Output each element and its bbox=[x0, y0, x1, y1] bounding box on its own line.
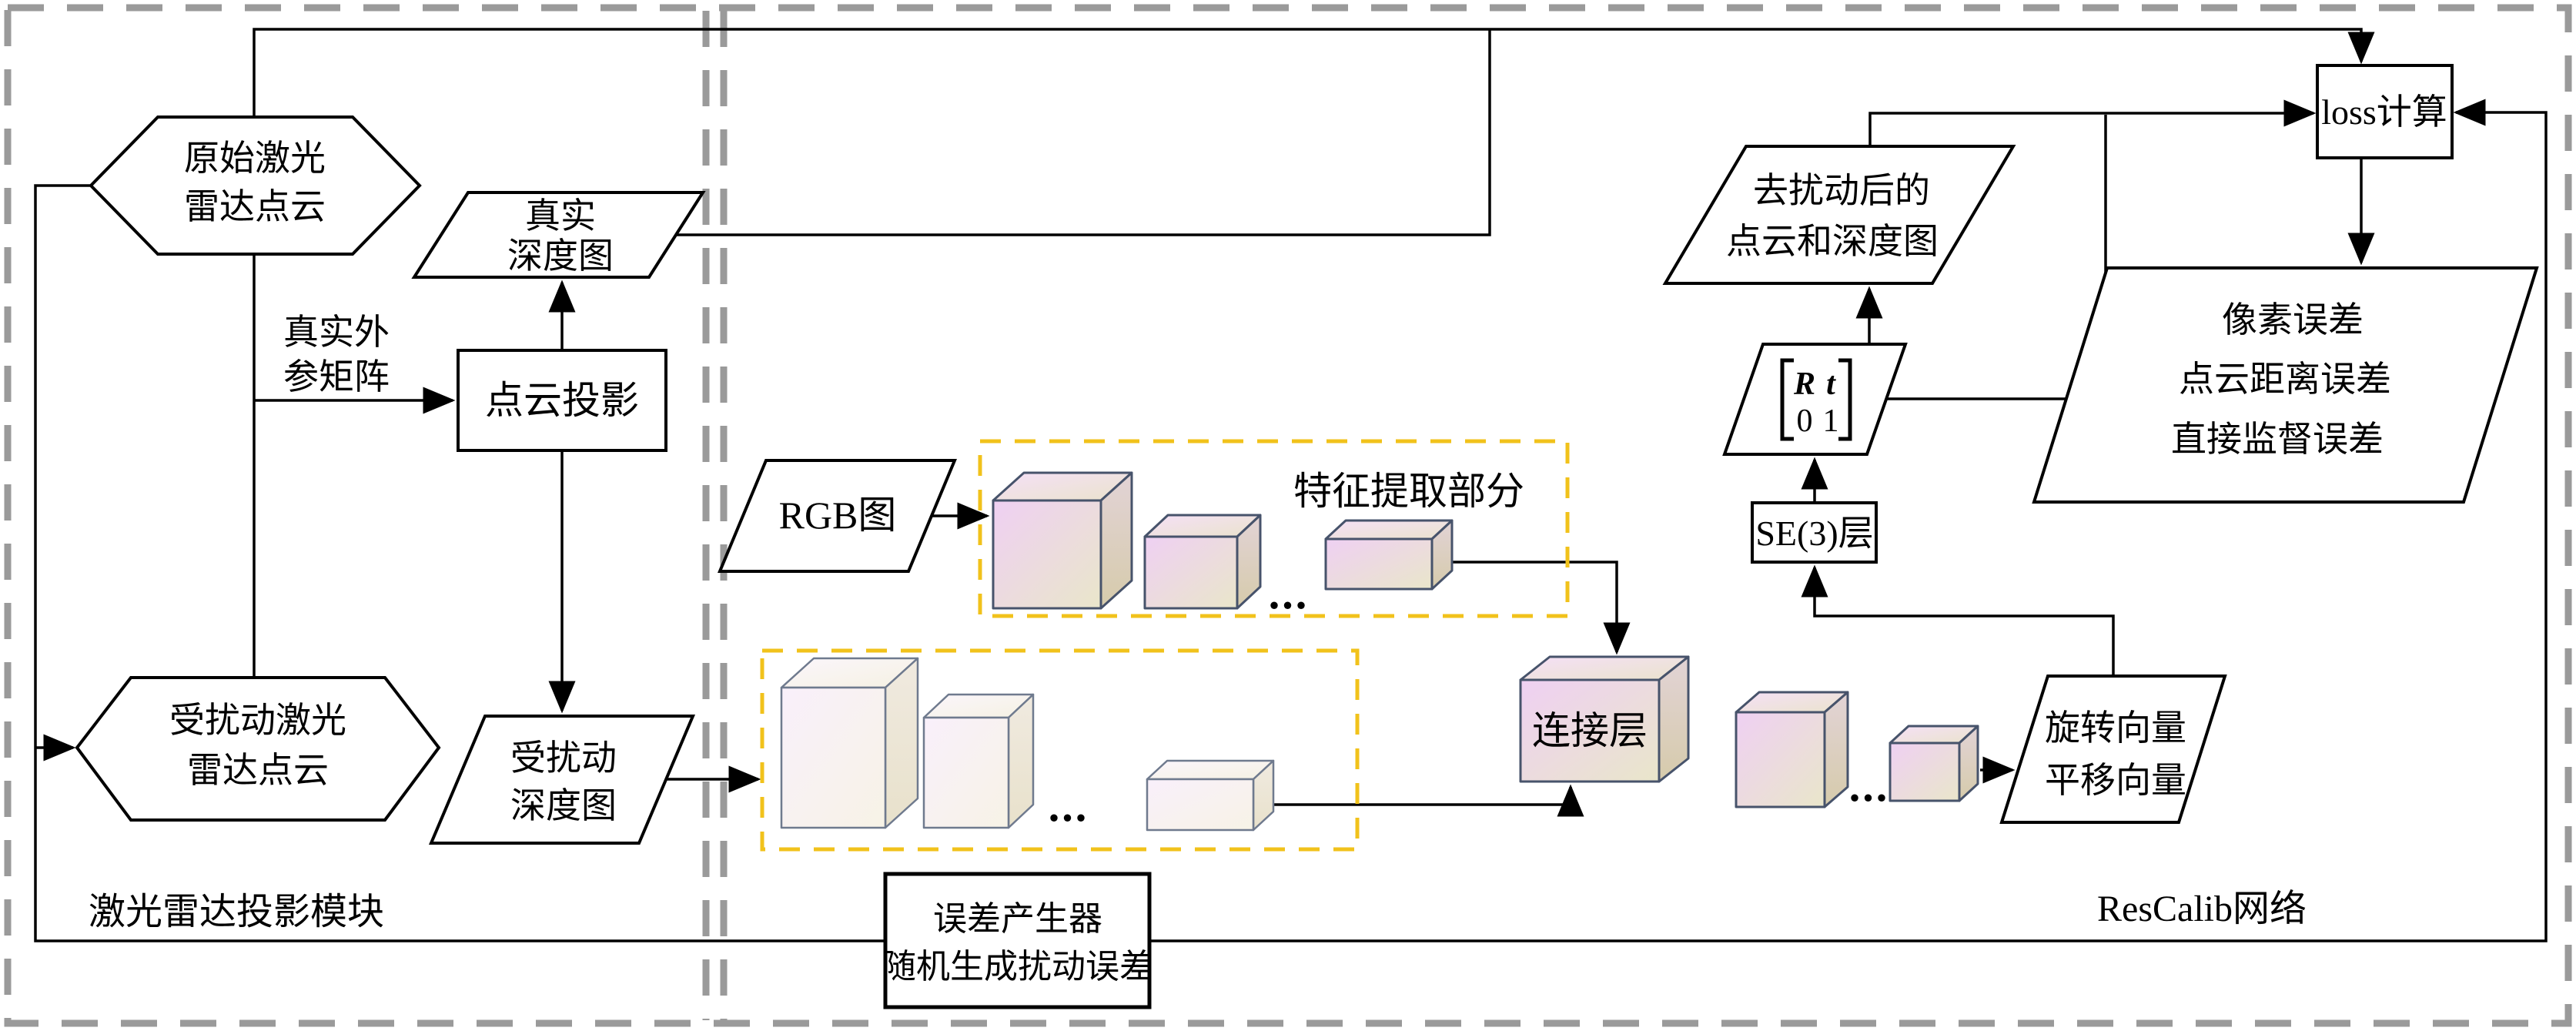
vectors-label-line1: 旋转向量 bbox=[2045, 708, 2186, 748]
matrix-t: t bbox=[1826, 367, 1836, 402]
node-perturbed-lidar-cloud bbox=[77, 678, 439, 820]
perturbed-cloud-label-line1: 受扰动激光 bbox=[169, 701, 346, 740]
depth-cube-3 bbox=[1147, 761, 1273, 830]
rescalib-network-label: ResCalib网络 bbox=[2097, 889, 2307, 929]
matrix-1: 1 bbox=[1823, 403, 1839, 439]
feature-cube-2 bbox=[1145, 515, 1260, 608]
depth-cube-1 bbox=[781, 658, 918, 828]
deperturbed-label-line2: 点云和深度图 bbox=[1726, 222, 1939, 261]
wire-deperturbed-to-loss-left bbox=[1870, 113, 2313, 146]
wire-vectors-to-se3 bbox=[1815, 567, 2113, 676]
cloud-projection-label: 点云投影 bbox=[485, 379, 639, 422]
feature-extraction-label: 特征提取部分 bbox=[1293, 470, 1524, 513]
errors-label-line2: 点云距离误差 bbox=[2179, 360, 2391, 399]
raw-cloud-label-line1: 原始激光 bbox=[184, 139, 326, 178]
se3-label: SE(3)层 bbox=[1755, 514, 1873, 553]
wire-lowerbranch-to-concat bbox=[1273, 787, 1571, 805]
true-depth-label-line1: 真实 bbox=[525, 196, 596, 236]
extrinsic-matrix-label-line1: 真实外 bbox=[283, 313, 390, 352]
diagram-canvas: 原始激光 雷达点云 真实 深度图 真实外 参矩阵 点云投影 受扰动激光 雷达点云… bbox=[0, 0, 2576, 1031]
node-deperturbed-output bbox=[1665, 146, 2013, 283]
deperturbed-label-line1: 去扰动后的 bbox=[1753, 171, 1930, 210]
concat-layer-label: 连接层 bbox=[1532, 709, 1648, 752]
node-rotation-translation-vectors bbox=[2002, 676, 2225, 822]
true-depth-label-line2: 深度图 bbox=[507, 236, 614, 276]
perturbed-depth-label-line1: 受扰动 bbox=[510, 738, 617, 778]
matrix-0: 0 bbox=[1797, 403, 1813, 439]
depth-cube-2 bbox=[924, 695, 1033, 828]
wire-truedepth-join-top bbox=[676, 29, 1490, 235]
errors-label-line3: 直接监督误差 bbox=[2171, 420, 2384, 459]
error-generator-line1: 误差产生器 bbox=[933, 900, 1102, 938]
feature-cube-3 bbox=[1326, 521, 1452, 589]
matrix-R: R bbox=[1793, 367, 1815, 402]
depth-ellipsis: ... bbox=[1049, 781, 1089, 831]
error-generator-line2: 随机生成扰动误差 bbox=[882, 948, 1153, 986]
wire-upperbranch-to-concat bbox=[1452, 562, 1617, 652]
rgb-label: RGB图 bbox=[779, 494, 897, 537]
lidar-projection-module-label: 激光雷达投影模块 bbox=[89, 892, 384, 932]
flowchart-svg: 原始激光 雷达点云 真实 深度图 真实外 参矩阵 点云投影 受扰动激光 雷达点云… bbox=[0, 0, 2576, 1031]
wire-rawcloud-to-loss-top bbox=[254, 29, 2361, 117]
perturbed-depth-label-line2: 深度图 bbox=[510, 786, 617, 825]
vectors-label-line2: 平移向量 bbox=[2045, 761, 2186, 800]
errors-label-line1: 像素误差 bbox=[2222, 300, 2364, 340]
extrinsic-matrix-label-line2: 参矩阵 bbox=[283, 357, 390, 397]
post-concat-cube-1 bbox=[1736, 692, 1848, 807]
error-generator-box bbox=[885, 874, 1149, 1007]
node-raw-lidar-cloud bbox=[91, 117, 420, 254]
perturbed-cloud-label-line2: 雷达点云 bbox=[187, 751, 329, 790]
post-concat-cube-2 bbox=[1890, 726, 1978, 801]
feature-ellipsis: ... bbox=[1269, 568, 1310, 618]
post-concat-ellipsis: ... bbox=[1849, 761, 1890, 811]
feature-cube-1 bbox=[993, 473, 1132, 608]
raw-cloud-label-line2: 雷达点云 bbox=[184, 187, 326, 226]
loss-label: loss计算 bbox=[2321, 92, 2447, 132]
